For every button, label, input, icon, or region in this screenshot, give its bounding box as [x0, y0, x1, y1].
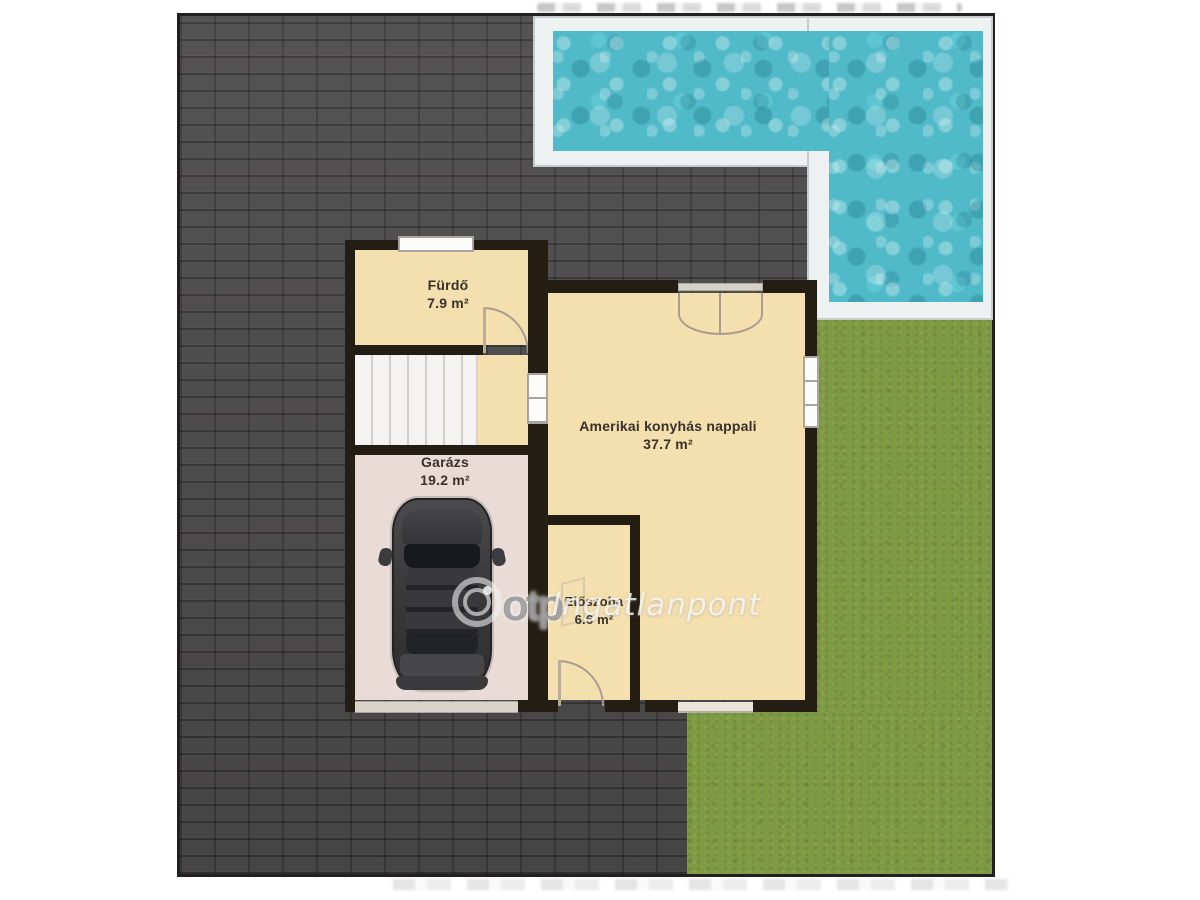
otp-logo-icon — [452, 577, 502, 627]
wall-segment — [528, 240, 548, 712]
room-area: 19.2 m² — [365, 471, 525, 489]
car-bumper — [396, 676, 488, 690]
landing-window — [527, 373, 548, 424]
wall-segment — [753, 700, 817, 712]
room-name: Amerikai konyhás nappali — [548, 417, 788, 435]
car-hood — [402, 510, 482, 544]
entry-lintel — [678, 283, 763, 291]
bathroom-door-leaf — [483, 307, 486, 353]
room-area: 37.7 m² — [548, 435, 788, 453]
wall-segment — [805, 280, 817, 712]
room-label-bathroom: Fürdő 7.9 m² — [368, 276, 528, 312]
wall-segment — [345, 345, 483, 355]
room-label-garage: Garázs 19.2 m² — [365, 453, 525, 489]
room-name: Fürdő — [368, 276, 528, 294]
wall-segment — [605, 700, 640, 712]
car-windshield — [404, 544, 480, 568]
watermark-brand-text: Ingatlanpont — [552, 587, 761, 623]
staircase — [355, 355, 478, 445]
double-door-center-line — [719, 293, 721, 334]
car-rear-window — [406, 634, 478, 654]
room-area: 7.9 m² — [368, 294, 528, 312]
wall-segment — [548, 515, 640, 525]
wall-segment — [548, 700, 558, 712]
wall-segment — [518, 700, 528, 712]
terrace-window-opening — [678, 702, 753, 713]
car-trunk — [400, 654, 484, 676]
wall-segment — [645, 700, 678, 712]
living-room-window — [803, 356, 819, 428]
room-label-living-room: Amerikai konyhás nappali 37.7 m² — [548, 417, 788, 453]
living-room-floor — [548, 293, 805, 700]
room-name: Garázs — [365, 453, 525, 471]
pool-water-right — [829, 31, 983, 302]
wall-segment — [548, 280, 678, 293]
entrance-door-leaf — [558, 660, 561, 706]
lawn-bottom — [687, 712, 992, 874]
top-edge-artifact — [537, 3, 962, 12]
bathroom-window — [398, 236, 474, 252]
floor-plan-canvas: Fürdő 7.9 m² Garázs 19.2 m² Amerikai kon… — [0, 0, 1200, 900]
bottom-edge-artifact — [393, 879, 1010, 890]
garage-door — [355, 701, 518, 713]
wall-segment — [345, 240, 355, 712]
